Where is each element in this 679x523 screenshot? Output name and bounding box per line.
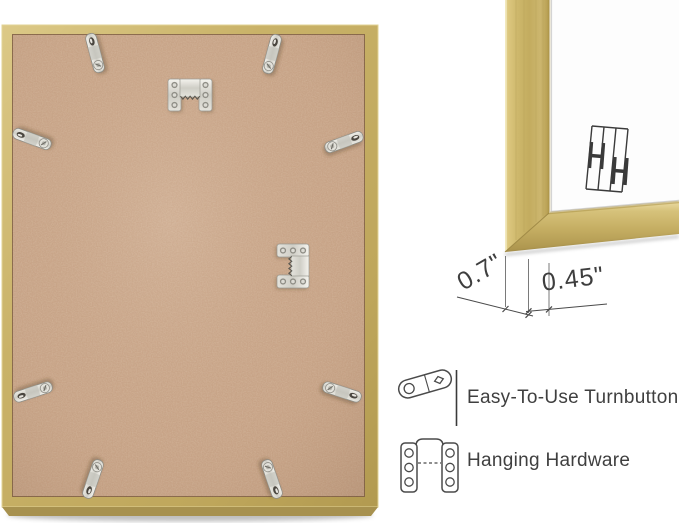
- frame-corner-vertical-rail: [505, 0, 549, 252]
- frame-depth-label: 0.7": [452, 248, 507, 296]
- product-infographic: 0.7" 0.45" Easy-To-Use Turnbuttons: [0, 0, 679, 523]
- product-image: 0.7" 0.45" Easy-To-Use Turnbuttons: [0, 0, 679, 523]
- frame-face-width-label: 0.45": [540, 261, 605, 296]
- frame-bottom-bevel: [2, 507, 378, 516]
- depth-dimension-line: [457, 297, 533, 316]
- frame-back-view: [2, 25, 378, 522]
- feature-hanging-hardware: Hanging Hardware: [401, 439, 630, 492]
- hanging-hardware-icon: [401, 439, 458, 492]
- feature-turnbuttons-label: Easy-To-Use Turnbuttons: [467, 387, 679, 408]
- frame-corner-detail: 0.7" 0.45": [452, 0, 679, 318]
- feature-hanging-hardware-label: Hanging Hardware: [467, 450, 630, 471]
- feature-turnbuttons: Easy-To-Use Turnbuttons: [397, 368, 679, 426]
- dimension-annotation: 0.7" 0.45": [452, 248, 607, 318]
- feature-callouts: Easy-To-Use Turnbuttons Hanging Hardware: [397, 368, 679, 492]
- turnbuttons-icon: [397, 368, 457, 426]
- mdf-back-board: [12, 34, 365, 497]
- face-width-dimension-line: [526, 304, 607, 312]
